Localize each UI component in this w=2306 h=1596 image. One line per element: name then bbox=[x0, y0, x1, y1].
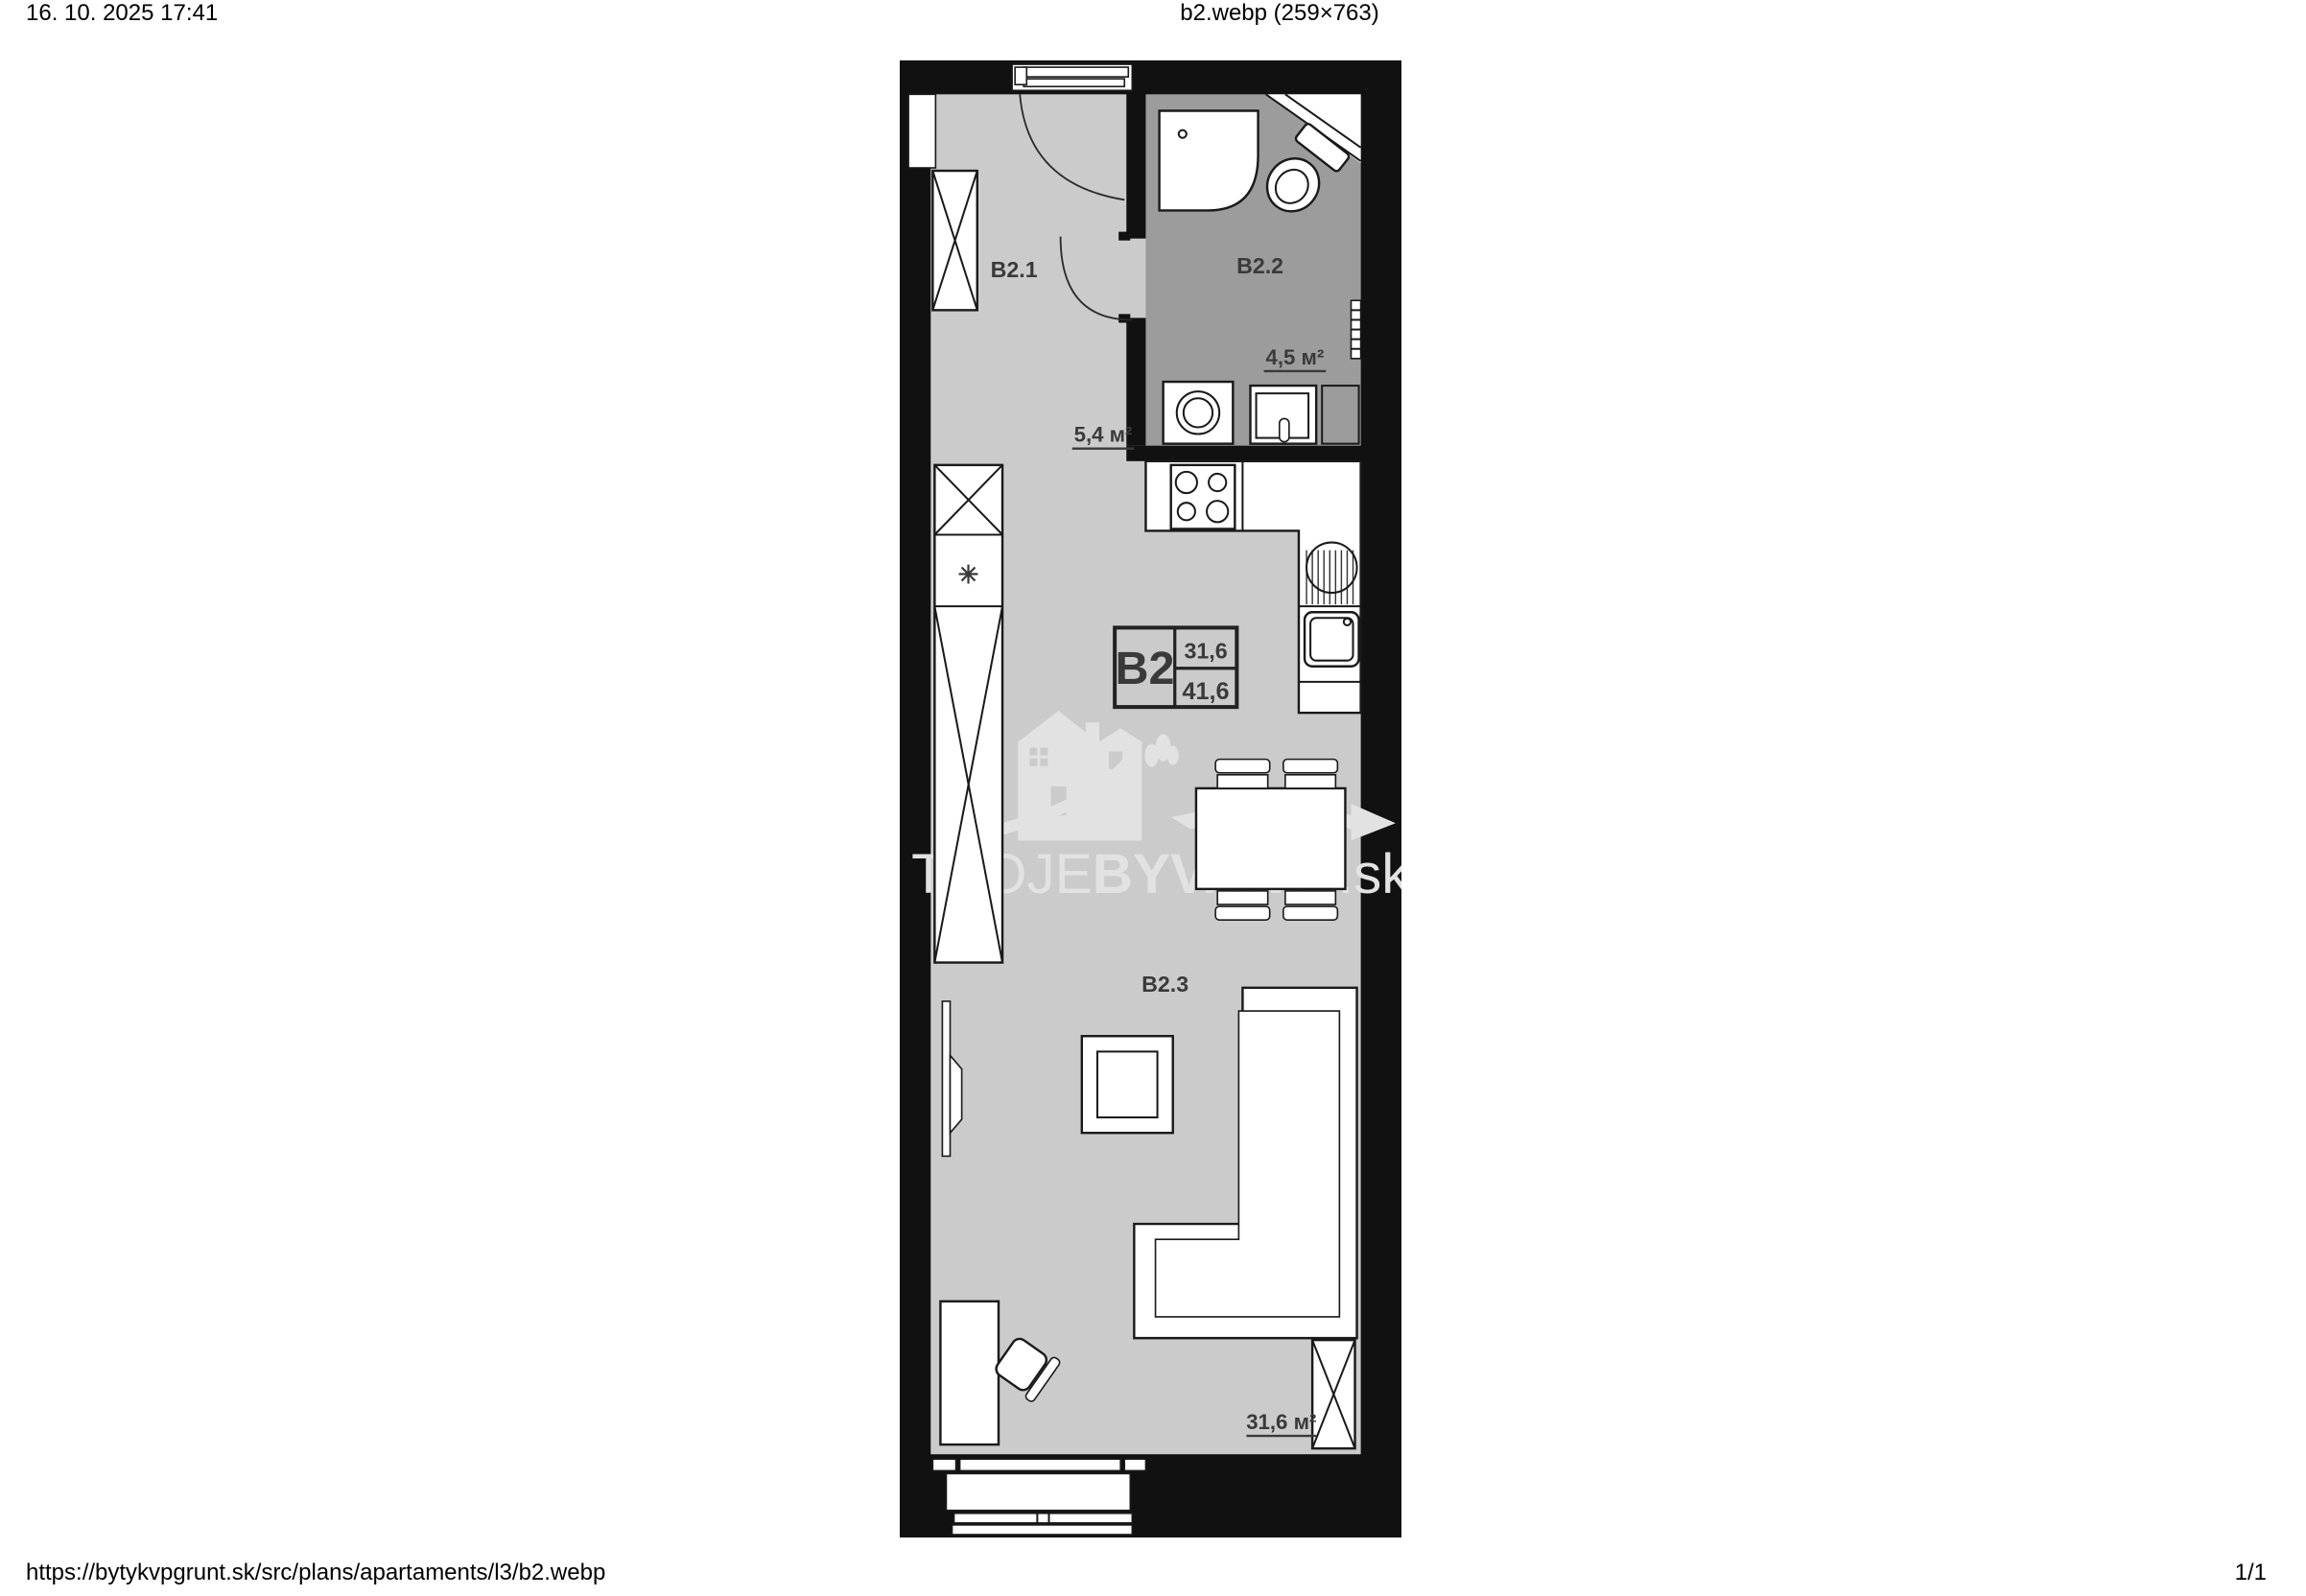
unit-code: B2 bbox=[1115, 643, 1174, 694]
coffee-table bbox=[1082, 1036, 1173, 1133]
bedroom-wardrobe-small bbox=[1312, 1340, 1354, 1448]
desk bbox=[940, 1302, 999, 1444]
balcony-window bbox=[932, 1459, 1145, 1535]
room-label-b22: B2.2 bbox=[1236, 253, 1283, 278]
area-label-b22: 4,5 м² bbox=[1266, 345, 1325, 369]
floor-plan-image: TVOJEBYVANIE.sk bbox=[900, 60, 1401, 1537]
washing-machine bbox=[1164, 382, 1234, 444]
unit-total-area: 41,6 bbox=[1182, 678, 1229, 705]
floor-plan-svg: TVOJEBYVANIE.sk bbox=[900, 60, 1401, 1537]
print-footer-url: https://bytykvpgrunt.sk/src/plans/aparta… bbox=[26, 1561, 605, 1585]
towel-radiator bbox=[1351, 300, 1360, 359]
print-header-datetime: 16. 10. 2025 17:41 bbox=[26, 1, 218, 26]
kitchen-sink bbox=[1305, 612, 1359, 667]
dining-table bbox=[1196, 788, 1345, 889]
area-label-b23: 31,6 м² bbox=[1246, 1410, 1316, 1434]
fridge-symbol: ✳ bbox=[958, 560, 979, 589]
print-header-title: b2.webp (259×763) bbox=[1180, 1, 1379, 26]
wall-niche bbox=[908, 94, 935, 168]
bathroom-shelf bbox=[1322, 386, 1358, 444]
print-preview-page: { "page": { "background": "#ffffff", "he… bbox=[0, 0, 2306, 1596]
room-label-b21: B2.1 bbox=[991, 257, 1038, 282]
area-label-b21: 5,4 м² bbox=[1074, 423, 1133, 447]
stove bbox=[1171, 465, 1235, 529]
shower bbox=[1160, 110, 1259, 210]
bathroom-sink-cabinet bbox=[1250, 386, 1316, 444]
unit-living-area: 31,6 bbox=[1184, 639, 1227, 664]
entry-wardrobe bbox=[932, 171, 977, 310]
kitchen-tall-unit: ✳ bbox=[934, 465, 1002, 963]
print-footer-page-number: 1/1 bbox=[2235, 1561, 2267, 1585]
room-label-b23: B2.3 bbox=[1141, 972, 1188, 997]
